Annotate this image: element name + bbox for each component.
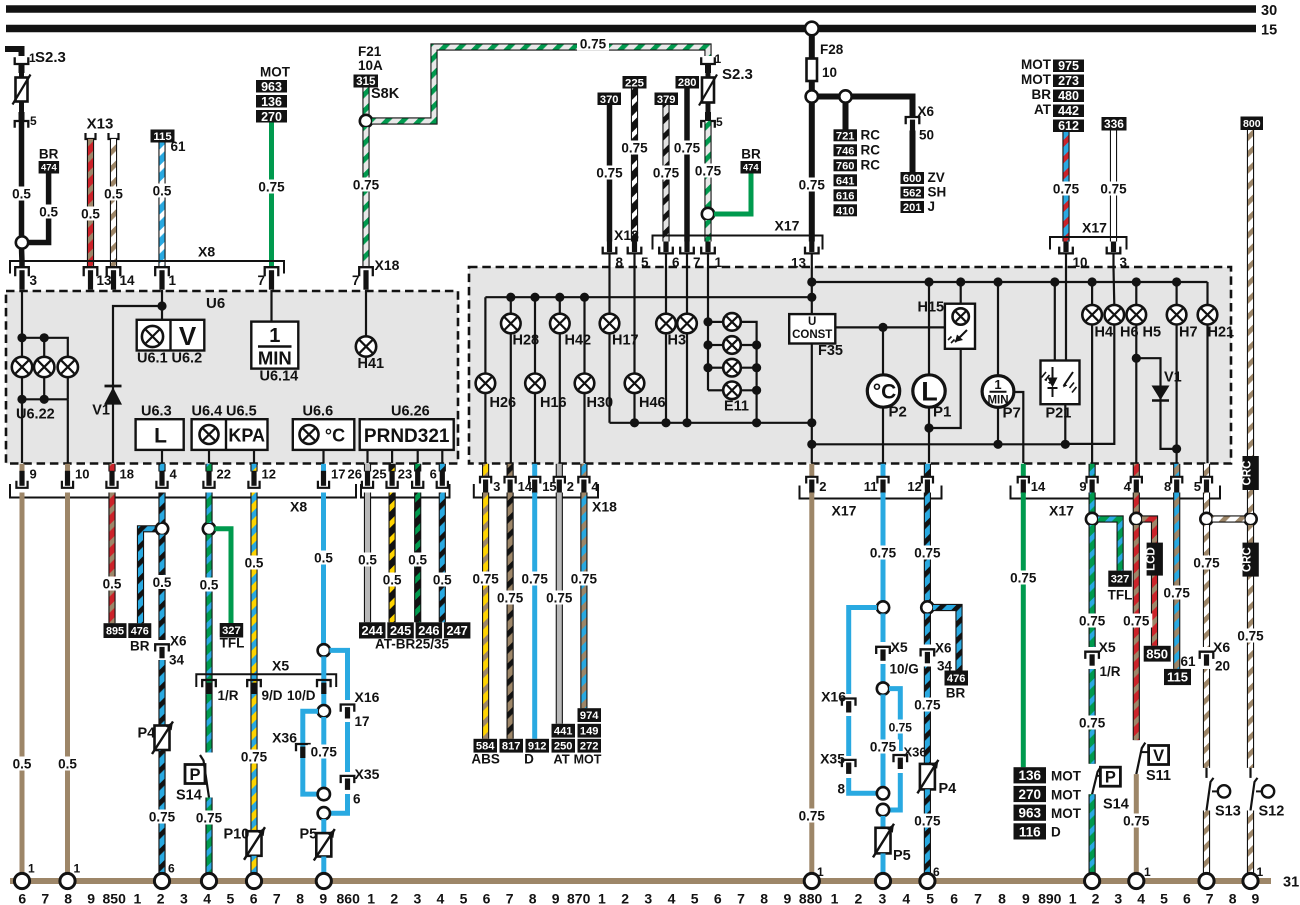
svg-text:KPA: KPA xyxy=(228,426,265,446)
svg-text:61: 61 xyxy=(171,139,187,154)
svg-text:S11: S11 xyxy=(1146,768,1171,784)
svg-text:10: 10 xyxy=(1073,255,1088,270)
svg-text:975: 975 xyxy=(1058,59,1079,73)
svg-text:X5: X5 xyxy=(1099,639,1116,655)
svg-text:U6.3: U6.3 xyxy=(141,404,172,420)
svg-text:MIN: MIN xyxy=(258,348,292,369)
svg-text:MOT: MOT xyxy=(1051,806,1082,821)
svg-text:V: V xyxy=(179,321,197,351)
svg-text:410: 410 xyxy=(836,205,855,217)
svg-text:MOT: MOT xyxy=(1051,788,1082,803)
svg-text:F35: F35 xyxy=(818,343,843,359)
svg-text:0.75: 0.75 xyxy=(1100,182,1127,197)
svg-text:474: 474 xyxy=(743,163,759,174)
svg-text:0.5: 0.5 xyxy=(245,556,264,571)
svg-text:5: 5 xyxy=(716,115,723,129)
svg-text:6: 6 xyxy=(18,891,26,905)
svg-text:1/R: 1/R xyxy=(1100,664,1121,679)
svg-text:0.75: 0.75 xyxy=(621,141,648,156)
svg-text:2: 2 xyxy=(855,891,863,905)
svg-text:0.75: 0.75 xyxy=(674,141,701,156)
svg-text:4: 4 xyxy=(902,891,910,905)
svg-text:X17: X17 xyxy=(1049,503,1074,519)
svg-text:25: 25 xyxy=(372,467,386,482)
svg-text:0.5: 0.5 xyxy=(408,553,427,568)
svg-text:X17: X17 xyxy=(1082,220,1107,236)
svg-text:14: 14 xyxy=(1031,479,1046,494)
svg-text:P5: P5 xyxy=(893,848,911,864)
svg-text:AT-BR25/35: AT-BR25/35 xyxy=(375,637,450,652)
svg-text:U6.22: U6.22 xyxy=(16,407,55,423)
svg-text:S14: S14 xyxy=(176,788,202,804)
svg-text:0.75: 0.75 xyxy=(1079,716,1106,731)
svg-text:6: 6 xyxy=(168,862,175,876)
svg-text:17: 17 xyxy=(331,467,345,482)
svg-text:8: 8 xyxy=(529,891,537,905)
svg-text:2: 2 xyxy=(567,479,574,494)
svg-text:X18: X18 xyxy=(375,257,400,273)
svg-text:U6.5: U6.5 xyxy=(226,404,257,420)
svg-text:0.75: 0.75 xyxy=(311,745,338,760)
svg-text:963: 963 xyxy=(1019,806,1042,821)
svg-text:0.75: 0.75 xyxy=(522,572,549,587)
svg-text:U6.2: U6.2 xyxy=(172,351,203,367)
svg-text:P4: P4 xyxy=(939,781,957,797)
svg-text:974: 974 xyxy=(580,710,599,722)
svg-text:0.75: 0.75 xyxy=(472,572,499,587)
svg-text:850: 850 xyxy=(1146,646,1168,661)
svg-text:S2.3: S2.3 xyxy=(35,49,66,66)
svg-text:476: 476 xyxy=(947,673,966,685)
svg-text:X18: X18 xyxy=(614,227,639,243)
svg-text:23: 23 xyxy=(398,467,412,482)
svg-text:ABS: ABS xyxy=(471,752,500,767)
svg-text:8: 8 xyxy=(616,255,624,270)
svg-text:4: 4 xyxy=(1124,479,1132,494)
svg-text:5: 5 xyxy=(641,255,649,270)
svg-text:7: 7 xyxy=(257,273,265,288)
svg-text:5: 5 xyxy=(460,891,468,905)
svg-text:273: 273 xyxy=(1058,74,1079,88)
svg-text:X6: X6 xyxy=(1213,639,1230,655)
svg-text:1: 1 xyxy=(715,255,723,270)
svg-text:0.5: 0.5 xyxy=(13,757,32,772)
svg-text:0.75: 0.75 xyxy=(1164,586,1191,601)
svg-text:9: 9 xyxy=(319,891,327,905)
svg-text:1: 1 xyxy=(367,891,375,905)
svg-text:10: 10 xyxy=(822,65,837,80)
svg-text:U6.4: U6.4 xyxy=(192,404,223,420)
svg-text:0.5: 0.5 xyxy=(12,187,31,202)
svg-text:J: J xyxy=(928,199,936,214)
svg-text:8: 8 xyxy=(998,891,1006,905)
svg-text:0.75: 0.75 xyxy=(799,178,826,193)
svg-text:480: 480 xyxy=(1058,89,1079,103)
svg-text:8: 8 xyxy=(296,891,304,905)
svg-text:746: 746 xyxy=(836,145,855,157)
svg-text:5: 5 xyxy=(227,891,235,905)
svg-text:6: 6 xyxy=(1183,891,1191,905)
svg-text:3: 3 xyxy=(493,479,500,494)
svg-text:6: 6 xyxy=(672,255,680,270)
svg-text:1: 1 xyxy=(598,891,606,905)
svg-text:V1: V1 xyxy=(1164,370,1182,386)
svg-text:2: 2 xyxy=(157,891,165,905)
svg-text:3: 3 xyxy=(1120,255,1128,270)
svg-text:850: 850 xyxy=(103,891,127,905)
svg-text:6: 6 xyxy=(950,891,958,905)
svg-text:14: 14 xyxy=(518,479,533,494)
svg-text:30: 30 xyxy=(1261,3,1277,19)
svg-text:X8: X8 xyxy=(198,244,215,260)
svg-text:H16: H16 xyxy=(540,395,567,411)
svg-text:6: 6 xyxy=(353,792,361,807)
svg-text:9: 9 xyxy=(1022,891,1030,905)
svg-text:7: 7 xyxy=(693,255,701,270)
svg-text:MOT: MOT xyxy=(260,65,291,80)
svg-text:X36: X36 xyxy=(272,730,297,746)
svg-text:61: 61 xyxy=(1181,654,1197,669)
svg-text:1: 1 xyxy=(74,862,81,876)
svg-text:817: 817 xyxy=(502,741,521,753)
svg-text:4: 4 xyxy=(591,479,599,494)
svg-text:10: 10 xyxy=(75,467,89,482)
svg-text:1: 1 xyxy=(28,862,35,876)
svg-text:P7: P7 xyxy=(1003,405,1021,422)
svg-text:2: 2 xyxy=(390,891,398,905)
svg-text:MOT: MOT xyxy=(1051,769,1082,784)
svg-text:860: 860 xyxy=(337,891,361,905)
svg-text:270: 270 xyxy=(261,110,282,124)
svg-text:U6: U6 xyxy=(206,295,225,312)
svg-text:963: 963 xyxy=(261,80,282,94)
svg-text:0.5: 0.5 xyxy=(39,205,58,220)
svg-text:8: 8 xyxy=(64,891,72,905)
svg-text:890: 890 xyxy=(1038,891,1062,905)
svg-text:°C: °C xyxy=(873,381,897,404)
svg-text:0.75: 0.75 xyxy=(914,814,941,829)
svg-text:5: 5 xyxy=(926,891,934,905)
svg-text:9/D: 9/D xyxy=(262,688,283,703)
svg-text:10/G: 10/G xyxy=(890,662,919,677)
svg-text:1: 1 xyxy=(994,377,1001,392)
svg-text:15: 15 xyxy=(1261,23,1277,39)
svg-text:0.75: 0.75 xyxy=(870,740,897,755)
svg-text:474: 474 xyxy=(41,163,57,174)
svg-text:S12: S12 xyxy=(1259,804,1285,820)
svg-text:RC: RC xyxy=(861,157,881,172)
svg-text:H42: H42 xyxy=(565,333,592,349)
svg-text:13: 13 xyxy=(791,256,807,271)
svg-text:136: 136 xyxy=(261,95,282,109)
svg-text:0.75: 0.75 xyxy=(799,809,826,824)
svg-text:CRC: CRC xyxy=(1242,547,1254,572)
svg-text:2: 2 xyxy=(621,891,629,905)
svg-text:X18: X18 xyxy=(592,499,617,515)
svg-text:327: 327 xyxy=(1111,574,1130,586)
svg-text:7: 7 xyxy=(41,891,49,905)
svg-text:0.75: 0.75 xyxy=(1193,556,1220,571)
svg-text:0.75: 0.75 xyxy=(497,591,524,606)
svg-text:0.75: 0.75 xyxy=(889,721,913,735)
svg-text:34: 34 xyxy=(169,653,185,668)
svg-text:X17: X17 xyxy=(775,218,800,234)
svg-text:270: 270 xyxy=(1019,787,1042,802)
svg-text:9: 9 xyxy=(552,891,560,905)
svg-text:612: 612 xyxy=(1058,119,1079,133)
svg-text:7: 7 xyxy=(1206,891,1214,905)
svg-text:616: 616 xyxy=(836,190,855,202)
svg-text:12: 12 xyxy=(262,467,276,482)
svg-text:X16: X16 xyxy=(821,689,846,705)
svg-text:L: L xyxy=(921,377,938,407)
svg-text:0.5: 0.5 xyxy=(200,578,219,593)
svg-text:8: 8 xyxy=(837,782,845,797)
svg-text:H7: H7 xyxy=(1179,325,1198,341)
svg-text:442: 442 xyxy=(1058,104,1079,118)
svg-text:6: 6 xyxy=(483,891,491,905)
svg-text:1: 1 xyxy=(134,891,142,905)
svg-text:0.75: 0.75 xyxy=(353,178,380,193)
svg-text:0.75: 0.75 xyxy=(241,750,268,765)
svg-text:6: 6 xyxy=(250,891,258,905)
svg-text:MOT: MOT xyxy=(574,753,602,767)
svg-text:X35: X35 xyxy=(820,751,845,767)
svg-text:247: 247 xyxy=(446,623,467,638)
svg-text:1: 1 xyxy=(1144,865,1151,879)
svg-text:0.75: 0.75 xyxy=(149,810,176,825)
svg-text:E11: E11 xyxy=(724,399,749,415)
svg-text:CRC: CRC xyxy=(1242,461,1254,486)
svg-text:2: 2 xyxy=(819,479,826,494)
svg-text:5: 5 xyxy=(30,114,37,128)
svg-text:0.5: 0.5 xyxy=(433,573,452,588)
svg-text:4: 4 xyxy=(668,891,676,905)
svg-text:0.75: 0.75 xyxy=(1237,629,1264,644)
svg-text:TFL: TFL xyxy=(220,636,245,651)
svg-text:0.75: 0.75 xyxy=(653,166,680,181)
svg-text:0.5: 0.5 xyxy=(153,184,172,199)
svg-text:V: V xyxy=(1153,747,1164,765)
svg-text:0.5: 0.5 xyxy=(153,575,172,590)
svg-text:136: 136 xyxy=(1019,768,1042,783)
svg-text:870: 870 xyxy=(567,891,591,905)
svg-text:4: 4 xyxy=(203,891,211,905)
svg-text:0.75: 0.75 xyxy=(196,811,223,826)
svg-text:10A: 10A xyxy=(358,58,383,73)
svg-text:7: 7 xyxy=(506,891,514,905)
svg-text:476: 476 xyxy=(131,626,149,638)
svg-text:BR: BR xyxy=(39,147,59,162)
svg-text:0.5: 0.5 xyxy=(104,187,123,202)
svg-text:3: 3 xyxy=(30,273,38,288)
svg-text:H41: H41 xyxy=(358,356,385,372)
svg-text:0.75: 0.75 xyxy=(1010,571,1037,586)
svg-text:V1: V1 xyxy=(92,403,110,419)
svg-text:0.75: 0.75 xyxy=(1123,614,1150,629)
svg-text:P: P xyxy=(1105,769,1116,787)
svg-text:14: 14 xyxy=(120,273,136,288)
svg-text:379: 379 xyxy=(657,94,676,106)
svg-text:116: 116 xyxy=(1019,824,1041,839)
svg-text:31: 31 xyxy=(1283,875,1299,891)
svg-text:7: 7 xyxy=(737,891,745,905)
svg-text:P: P xyxy=(189,766,200,784)
svg-text:TFL: TFL xyxy=(1108,588,1133,603)
svg-text:6: 6 xyxy=(430,467,437,482)
svg-text:0.75: 0.75 xyxy=(1053,182,1080,197)
svg-text:X35: X35 xyxy=(355,766,380,782)
svg-text:1: 1 xyxy=(831,891,839,905)
svg-text:U: U xyxy=(808,316,816,328)
svg-text:3: 3 xyxy=(644,891,652,905)
svg-text:F28: F28 xyxy=(820,42,844,57)
svg-text:X6: X6 xyxy=(918,104,935,119)
svg-text:P4: P4 xyxy=(138,726,156,742)
svg-text:201: 201 xyxy=(903,202,922,214)
svg-text:P5: P5 xyxy=(300,827,318,843)
svg-text:S2.3: S2.3 xyxy=(722,66,753,83)
svg-text:1: 1 xyxy=(1069,891,1077,905)
svg-text:RC: RC xyxy=(861,142,881,157)
svg-text:LCD: LCD xyxy=(1146,547,1158,571)
svg-text:18: 18 xyxy=(120,467,134,482)
svg-text:34: 34 xyxy=(937,659,953,674)
svg-text:P21: P21 xyxy=(1046,406,1072,422)
svg-text:F21: F21 xyxy=(358,44,382,59)
svg-text:D: D xyxy=(524,752,534,767)
svg-text:0.75: 0.75 xyxy=(571,572,598,587)
svg-text:20: 20 xyxy=(1215,659,1230,674)
svg-text:562: 562 xyxy=(903,188,922,200)
svg-text:9: 9 xyxy=(87,891,95,905)
svg-text:17: 17 xyxy=(355,714,370,729)
svg-text:X13: X13 xyxy=(87,116,114,133)
svg-text:441: 441 xyxy=(554,726,573,738)
svg-text:ZV: ZV xyxy=(928,170,945,185)
svg-text:5: 5 xyxy=(1160,891,1168,905)
svg-text:CONST: CONST xyxy=(792,329,832,341)
svg-text:6: 6 xyxy=(714,891,722,905)
svg-text:BR: BR xyxy=(1032,87,1052,102)
svg-text:760: 760 xyxy=(836,160,855,172)
svg-text:115: 115 xyxy=(153,131,172,143)
svg-text:0.75: 0.75 xyxy=(258,180,285,195)
svg-text:50: 50 xyxy=(919,128,934,143)
svg-text:X16: X16 xyxy=(355,689,380,705)
svg-text:0.5: 0.5 xyxy=(383,573,402,588)
svg-text:BR: BR xyxy=(130,639,150,654)
svg-text:H4: H4 xyxy=(1095,325,1114,341)
svg-text:0.75: 0.75 xyxy=(870,546,897,561)
svg-text:8: 8 xyxy=(1229,891,1237,905)
svg-text:H3: H3 xyxy=(668,333,687,349)
svg-text:U6.26: U6.26 xyxy=(391,404,430,420)
svg-text:1/R: 1/R xyxy=(218,688,239,703)
svg-text:AT: AT xyxy=(1034,102,1052,117)
svg-text:9: 9 xyxy=(784,891,792,905)
svg-text:7: 7 xyxy=(273,891,281,905)
svg-text:AT: AT xyxy=(553,752,569,767)
svg-text:225: 225 xyxy=(625,77,645,89)
svg-text:272: 272 xyxy=(580,741,599,753)
svg-text:1: 1 xyxy=(269,325,280,347)
svg-text:0.75: 0.75 xyxy=(1079,614,1106,629)
svg-text:S8K: S8K xyxy=(371,86,400,102)
svg-text:L: L xyxy=(154,425,167,448)
svg-text:X5: X5 xyxy=(891,639,908,655)
svg-text:7: 7 xyxy=(974,891,982,905)
svg-text:7: 7 xyxy=(352,273,360,288)
svg-text:22: 22 xyxy=(217,467,231,482)
svg-text:4: 4 xyxy=(170,467,178,482)
svg-text:0.75: 0.75 xyxy=(914,698,941,713)
svg-text:H15: H15 xyxy=(918,300,945,316)
svg-text:S13: S13 xyxy=(1215,804,1241,820)
svg-text:3: 3 xyxy=(180,891,188,905)
svg-text:P10: P10 xyxy=(224,827,250,843)
svg-text:RC: RC xyxy=(861,127,881,142)
svg-text:8: 8 xyxy=(760,891,768,905)
svg-text:880: 880 xyxy=(799,891,823,905)
svg-text:U6.14: U6.14 xyxy=(260,369,299,385)
svg-text:°C: °C xyxy=(325,426,345,446)
svg-text:0.5: 0.5 xyxy=(81,207,100,222)
svg-text:0.75: 0.75 xyxy=(596,166,623,181)
svg-text:MOT: MOT xyxy=(1021,72,1052,87)
svg-text:BR: BR xyxy=(946,686,966,701)
svg-text:0.5: 0.5 xyxy=(314,551,333,566)
svg-text:8: 8 xyxy=(1164,479,1171,494)
svg-text:SH: SH xyxy=(928,185,947,200)
svg-text:0.75: 0.75 xyxy=(580,37,607,52)
svg-text:0.75: 0.75 xyxy=(546,591,573,606)
svg-text:13: 13 xyxy=(97,273,113,288)
svg-text:3: 3 xyxy=(1114,891,1122,905)
svg-text:9: 9 xyxy=(1252,891,1260,905)
svg-text:P1: P1 xyxy=(933,404,951,421)
svg-text:H21: H21 xyxy=(1208,325,1235,341)
svg-text:X5: X5 xyxy=(272,658,289,674)
svg-text:115: 115 xyxy=(1167,670,1188,685)
svg-text:2: 2 xyxy=(1092,891,1100,905)
svg-text:X8: X8 xyxy=(290,499,307,515)
svg-text:BR: BR xyxy=(741,147,761,162)
svg-text:3: 3 xyxy=(879,891,887,905)
svg-text:12: 12 xyxy=(907,479,921,494)
svg-text:10/D: 10/D xyxy=(287,688,316,703)
svg-text:X17: X17 xyxy=(832,503,857,519)
svg-text:280: 280 xyxy=(678,77,697,89)
svg-text:1: 1 xyxy=(169,273,177,288)
svg-text:0.75: 0.75 xyxy=(695,164,722,179)
svg-text:H5: H5 xyxy=(1143,325,1162,341)
svg-text:600: 600 xyxy=(903,173,922,185)
svg-text:5: 5 xyxy=(691,891,699,905)
svg-text:H26: H26 xyxy=(490,395,517,411)
svg-text:721: 721 xyxy=(836,130,855,142)
svg-text:895: 895 xyxy=(106,626,124,638)
svg-text:U6.1: U6.1 xyxy=(137,351,168,367)
svg-text:370: 370 xyxy=(600,94,619,106)
svg-text:X36: X36 xyxy=(904,745,927,760)
svg-text:0.5: 0.5 xyxy=(58,757,77,772)
svg-text:9: 9 xyxy=(30,467,37,482)
svg-text:11: 11 xyxy=(864,479,878,494)
svg-text:0.5: 0.5 xyxy=(358,553,377,568)
svg-text:U6.6: U6.6 xyxy=(303,404,334,420)
svg-text:4: 4 xyxy=(1137,891,1145,905)
